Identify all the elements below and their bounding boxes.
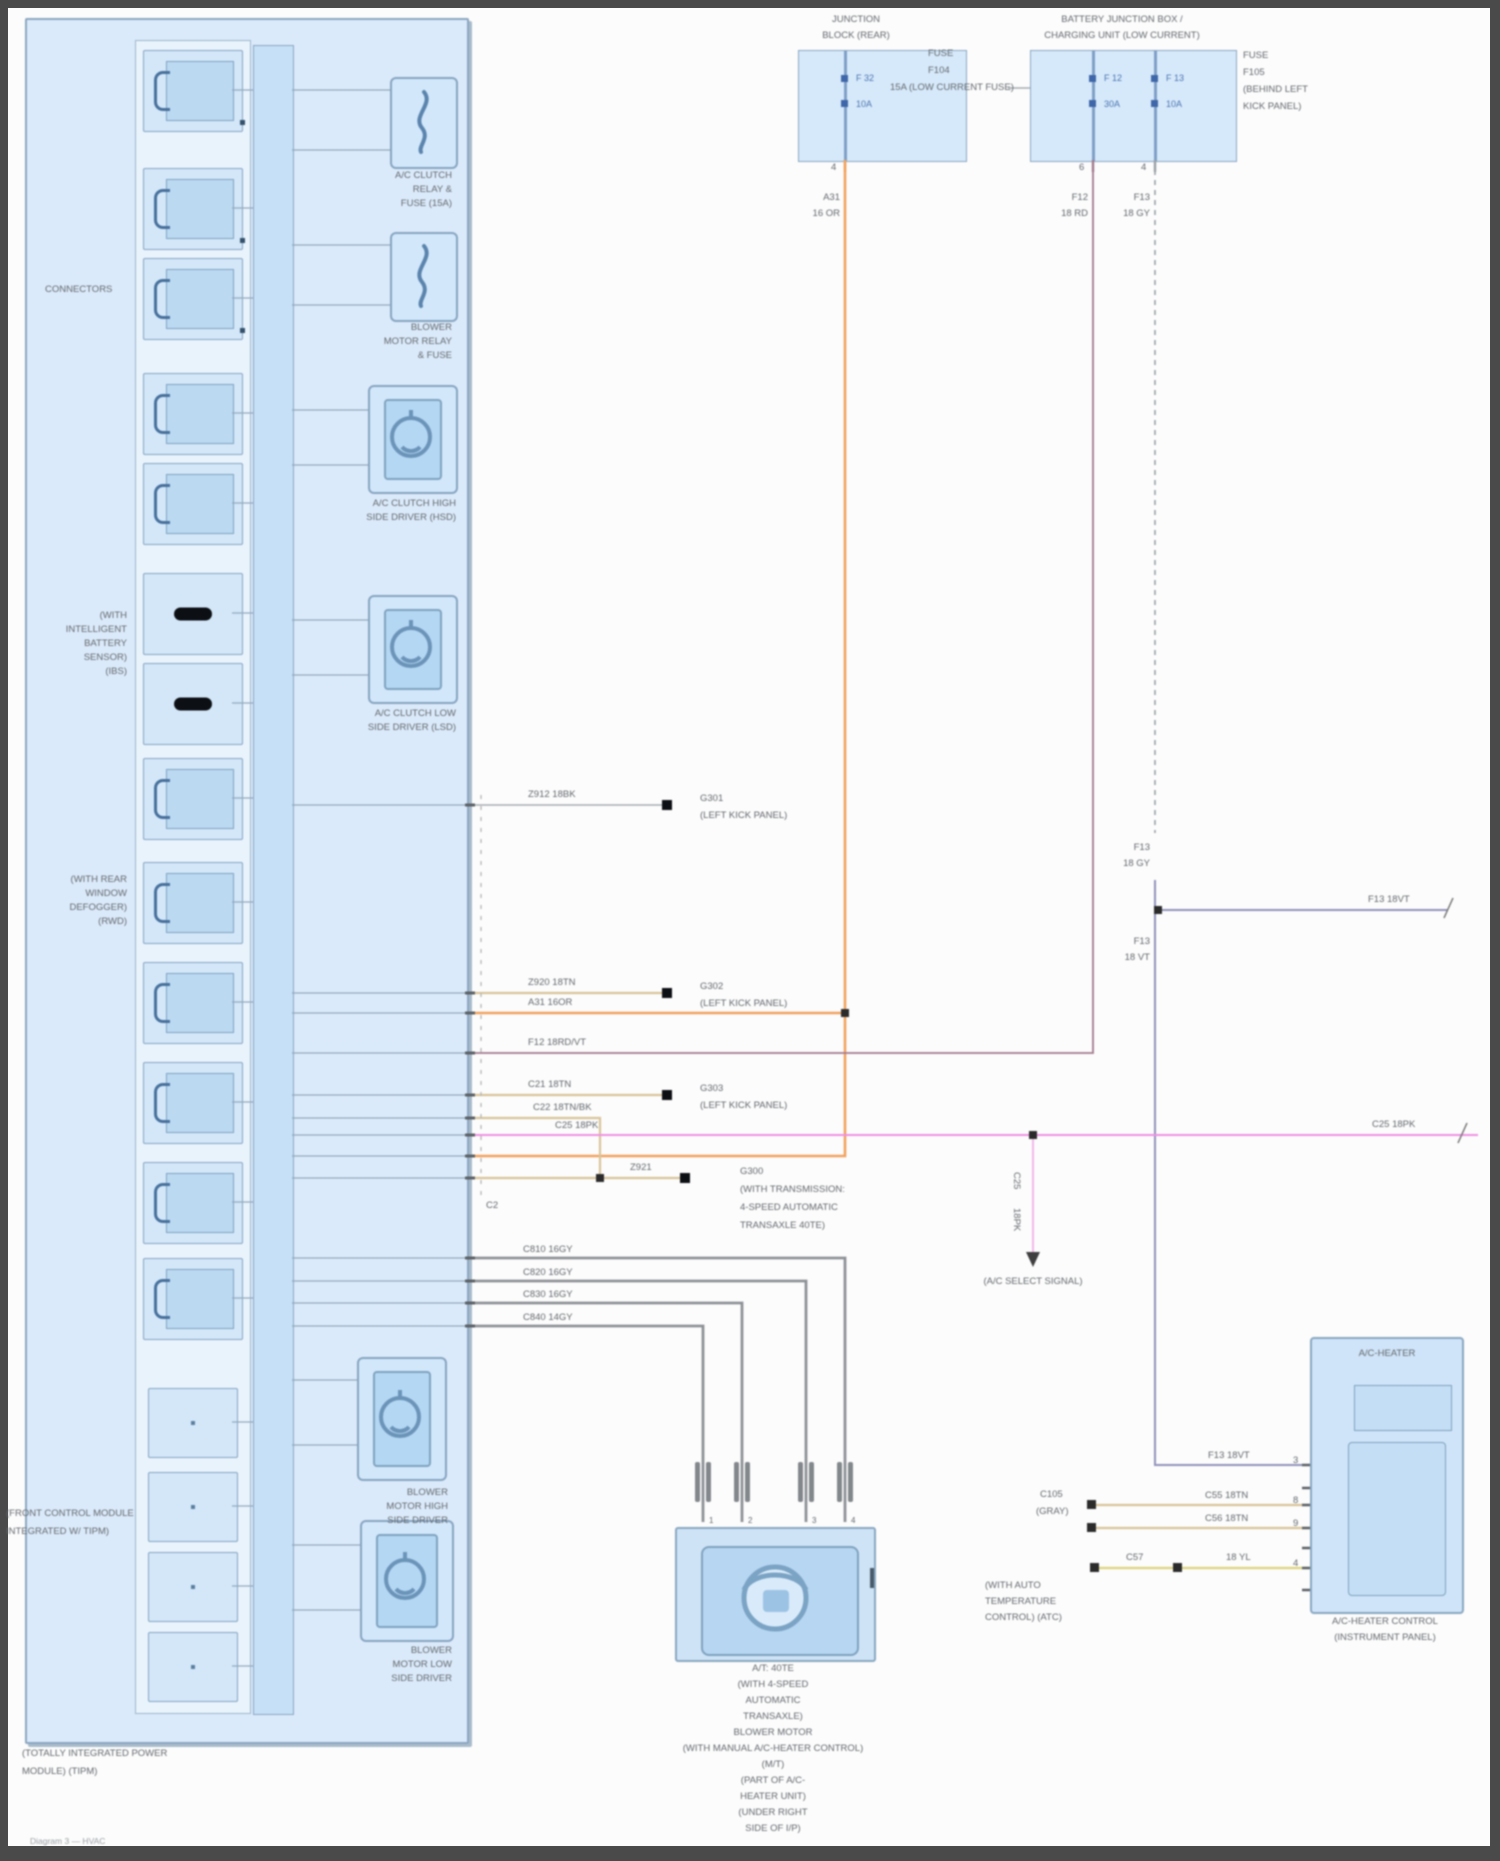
wire-code: 18 RD bbox=[1061, 208, 1088, 219]
ground-label: (LEFT KICK PANEL) bbox=[700, 810, 787, 821]
component-caption: A/C CLUTCH LOW bbox=[375, 708, 456, 719]
blower-caption: (WITH 4-SPEED bbox=[738, 1679, 809, 1690]
battery-box-header2: CHARGING UNIT (LOW CURRENT) bbox=[1044, 30, 1200, 41]
orange-wire bbox=[467, 160, 845, 1156]
slate-wire bbox=[1155, 880, 1448, 1465]
ground-label: G302 bbox=[700, 981, 723, 992]
component-caption: FUSE (15A) bbox=[401, 198, 452, 209]
ground-label: TRANSAXLE 40TE) bbox=[740, 1220, 825, 1231]
tan-wires bbox=[467, 993, 1310, 1528]
pin-number: 4 bbox=[831, 162, 836, 173]
wire-code: 18 GY bbox=[1123, 858, 1150, 869]
wire-label: C25 18PK bbox=[555, 1120, 598, 1131]
wire-label: Z921 bbox=[630, 1162, 652, 1173]
blower-caption: (PART OF A/C- bbox=[741, 1775, 805, 1786]
wire-label: C21 18TN bbox=[528, 1079, 571, 1090]
wire-code: A31 bbox=[823, 192, 840, 203]
pin-number: 4 bbox=[1141, 162, 1146, 173]
pink-wire bbox=[467, 1135, 1478, 1252]
pin-number: 3 bbox=[1293, 1455, 1298, 1466]
tipm-note-ibs: INTELLIGENT bbox=[66, 624, 127, 635]
blower-caption: HEATER UNIT) bbox=[740, 1791, 806, 1802]
fuse-note: FUSE bbox=[1243, 50, 1268, 61]
wire-label: C840 14GY bbox=[523, 1312, 573, 1323]
component-caption: BLOWER bbox=[411, 1645, 452, 1656]
acbox-pin-stubs bbox=[1302, 1465, 1310, 1590]
wire-label: C820 16GY bbox=[523, 1267, 573, 1278]
tipm-note-ibs: (WITH bbox=[100, 610, 127, 621]
wiring-diagram: F 32 10A F 12 30A F 13 10A A/C-HEATER bbox=[0, 0, 1500, 1861]
tipm-caption: (TOTALLY INTEGRATED POWER bbox=[22, 1748, 167, 1759]
pink-arrow-label: (A/C SELECT SIGNAL) bbox=[983, 1276, 1082, 1287]
wire-label: F13 18VT bbox=[1208, 1450, 1250, 1461]
junction-block-header: JUNCTION bbox=[832, 14, 880, 25]
pin-number: 4 bbox=[1293, 1558, 1298, 1569]
tipm-edge-label: CONNECTORS bbox=[45, 284, 112, 295]
fuse-note: KICK PANEL) bbox=[1243, 101, 1301, 112]
tipm-note-rwd: DEFOGGER) bbox=[69, 902, 127, 913]
atc-note: CONTROL) (ATC) bbox=[985, 1612, 1062, 1623]
tipm-note-rwd: (WITH REAR bbox=[71, 874, 127, 885]
fuse-note: FUSE bbox=[928, 48, 953, 59]
wire-code: F13 bbox=[1134, 936, 1150, 947]
ground-label: G303 bbox=[700, 1083, 723, 1094]
junction-dots bbox=[596, 906, 1182, 1572]
ground-label: 4-SPEED AUTOMATIC bbox=[740, 1202, 838, 1213]
driver-icons bbox=[381, 410, 430, 1598]
tipm-caption: MODULE) (TIPM) bbox=[22, 1766, 97, 1777]
blower-motor-icon bbox=[744, 1567, 806, 1629]
wire-label: C55 18TN bbox=[1205, 1490, 1248, 1501]
wire-code: 18 GY bbox=[1123, 208, 1150, 219]
fuse-note: (BEHIND LEFT bbox=[1243, 84, 1308, 95]
pin-number: 4 bbox=[851, 1515, 855, 1526]
ground-label: (WITH TRANSMISSION: bbox=[740, 1184, 845, 1195]
component-caption: SIDE DRIVER bbox=[387, 1515, 448, 1526]
component-caption: A/C CLUTCH bbox=[395, 170, 452, 181]
atc-note: (WITH AUTO bbox=[985, 1580, 1041, 1591]
junction-block-header2: BLOCK (REAR) bbox=[822, 30, 890, 41]
blower-caption: TRANSAXLE) bbox=[743, 1711, 803, 1722]
component-caption: MOTOR HIGH bbox=[386, 1501, 448, 1512]
tipm-note-fcm: INTEGRATED W/ TIPM) bbox=[6, 1526, 109, 1537]
wire-code: F13 bbox=[1134, 192, 1150, 203]
component-caption: & FUSE bbox=[418, 350, 452, 361]
tipm-note-rwd: (RWD) bbox=[98, 916, 127, 927]
component-caption: MOTOR RELAY bbox=[384, 336, 452, 347]
component-caption: SIDE DRIVER bbox=[391, 1673, 452, 1684]
wire-label: C57 bbox=[1126, 1552, 1143, 1563]
wire-label: Z920 18TN bbox=[528, 977, 576, 988]
violet-wire bbox=[467, 160, 1093, 1053]
connector-label: C2 bbox=[486, 1200, 498, 1211]
component-caption: RELAY & bbox=[413, 184, 452, 195]
inline-connector-label: C105 bbox=[1040, 1489, 1063, 1500]
blower-caption: (M/T) bbox=[762, 1759, 785, 1770]
tipm-note-ibs: (IBS) bbox=[105, 666, 127, 677]
topbox-stubs bbox=[845, 160, 1155, 172]
offpage-terminators bbox=[1444, 898, 1467, 1143]
blower-caption: SIDE OF I/P) bbox=[745, 1823, 800, 1834]
wire-label: A31 16OR bbox=[528, 997, 572, 1008]
wire-code: F12 bbox=[1072, 192, 1088, 203]
wire-label: C810 16GY bbox=[523, 1244, 573, 1255]
atc-note: TEMPERATURE bbox=[985, 1596, 1056, 1607]
pin-number: 1 bbox=[709, 1515, 713, 1526]
pin-number: 2 bbox=[748, 1515, 752, 1526]
wire-code: 18 VT bbox=[1125, 952, 1150, 963]
inline-connector-label: (GRAY) bbox=[1036, 1506, 1069, 1517]
diagram-frame: F 32 10A F 12 30A F 13 10A A/C-HEATER bbox=[0, 0, 1500, 1861]
edge-pin-ticks bbox=[465, 805, 475, 1326]
pin-number: 8 bbox=[1293, 1495, 1298, 1506]
offpage-label: C25 18PK bbox=[1372, 1119, 1415, 1130]
wire-label: 18 YL bbox=[1226, 1552, 1251, 1563]
wiring-layer bbox=[0, 0, 1500, 1861]
wire-label: C56 18TN bbox=[1205, 1513, 1248, 1524]
ground-label: (LEFT KICK PANEL) bbox=[700, 998, 787, 1009]
pink-arrowhead bbox=[1026, 1252, 1040, 1267]
component-caption: BLOWER bbox=[411, 322, 452, 333]
wire-code: F13 bbox=[1134, 842, 1150, 853]
ground-label: (LEFT KICK PANEL) bbox=[700, 1100, 787, 1111]
component-caption: BLOWER bbox=[407, 1487, 448, 1498]
component-caption: SIDE DRIVER (HSD) bbox=[366, 512, 456, 523]
tipm-note-fcm: (FRONT CONTROL MODULE bbox=[6, 1508, 134, 1519]
pin-number: 9 bbox=[1293, 1518, 1298, 1529]
fuse-note: F105 bbox=[1243, 67, 1265, 78]
blower-caption: (UNDER RIGHT bbox=[738, 1807, 807, 1818]
acbox-caption: A/C-HEATER CONTROL bbox=[1332, 1616, 1438, 1627]
watermark: Diagram 3 — HVAC bbox=[30, 1836, 105, 1847]
blower-caption: BLOWER MOTOR bbox=[734, 1727, 813, 1738]
tipm-note-ibs: BATTERY bbox=[84, 638, 127, 649]
wire-label: Z912 18BK bbox=[528, 789, 576, 800]
tipm-note-ibs: SENSOR) bbox=[84, 652, 127, 663]
fuse-note: F104 bbox=[928, 65, 950, 76]
component-caption: A/C CLUTCH HIGH bbox=[373, 498, 456, 509]
pin-number: 6 bbox=[1079, 162, 1084, 173]
ground-label: G300 bbox=[740, 1166, 763, 1177]
offpage-label: F13 18VT bbox=[1368, 894, 1410, 905]
inline-connectors bbox=[695, 1462, 853, 1502]
wire-label: C22 18TN/BK bbox=[533, 1102, 592, 1113]
ground-symbols bbox=[662, 800, 690, 1183]
battery-box-header: BATTERY JUNCTION BOX / bbox=[1061, 14, 1182, 25]
fuse-note: 15A (LOW CURRENT FUSE) bbox=[890, 82, 1014, 93]
blower-caption: AUTOMATIC bbox=[745, 1695, 800, 1706]
acbox-caption: (INSTRUMENT PANEL) bbox=[1334, 1632, 1436, 1643]
pink-wire-code: C25 bbox=[1011, 1172, 1022, 1189]
component-caption: SIDE DRIVER (LSD) bbox=[368, 722, 456, 733]
ground-label: G301 bbox=[700, 793, 723, 804]
wire-label: C830 16GY bbox=[523, 1289, 573, 1300]
blower-caption: (WITH MANUAL A/C-HEATER CONTROL) bbox=[683, 1743, 864, 1754]
pin-number: 3 bbox=[812, 1515, 816, 1526]
tipm-note-rwd: WINDOW bbox=[85, 888, 127, 899]
wire-label: F12 18RD/VT bbox=[528, 1037, 586, 1048]
blower-caption: A/T: 40TE bbox=[752, 1663, 794, 1674]
pink-wire-code: 18PK bbox=[1011, 1208, 1022, 1231]
component-caption: MOTOR LOW bbox=[393, 1659, 452, 1670]
wire-code: 16 OR bbox=[813, 208, 840, 219]
